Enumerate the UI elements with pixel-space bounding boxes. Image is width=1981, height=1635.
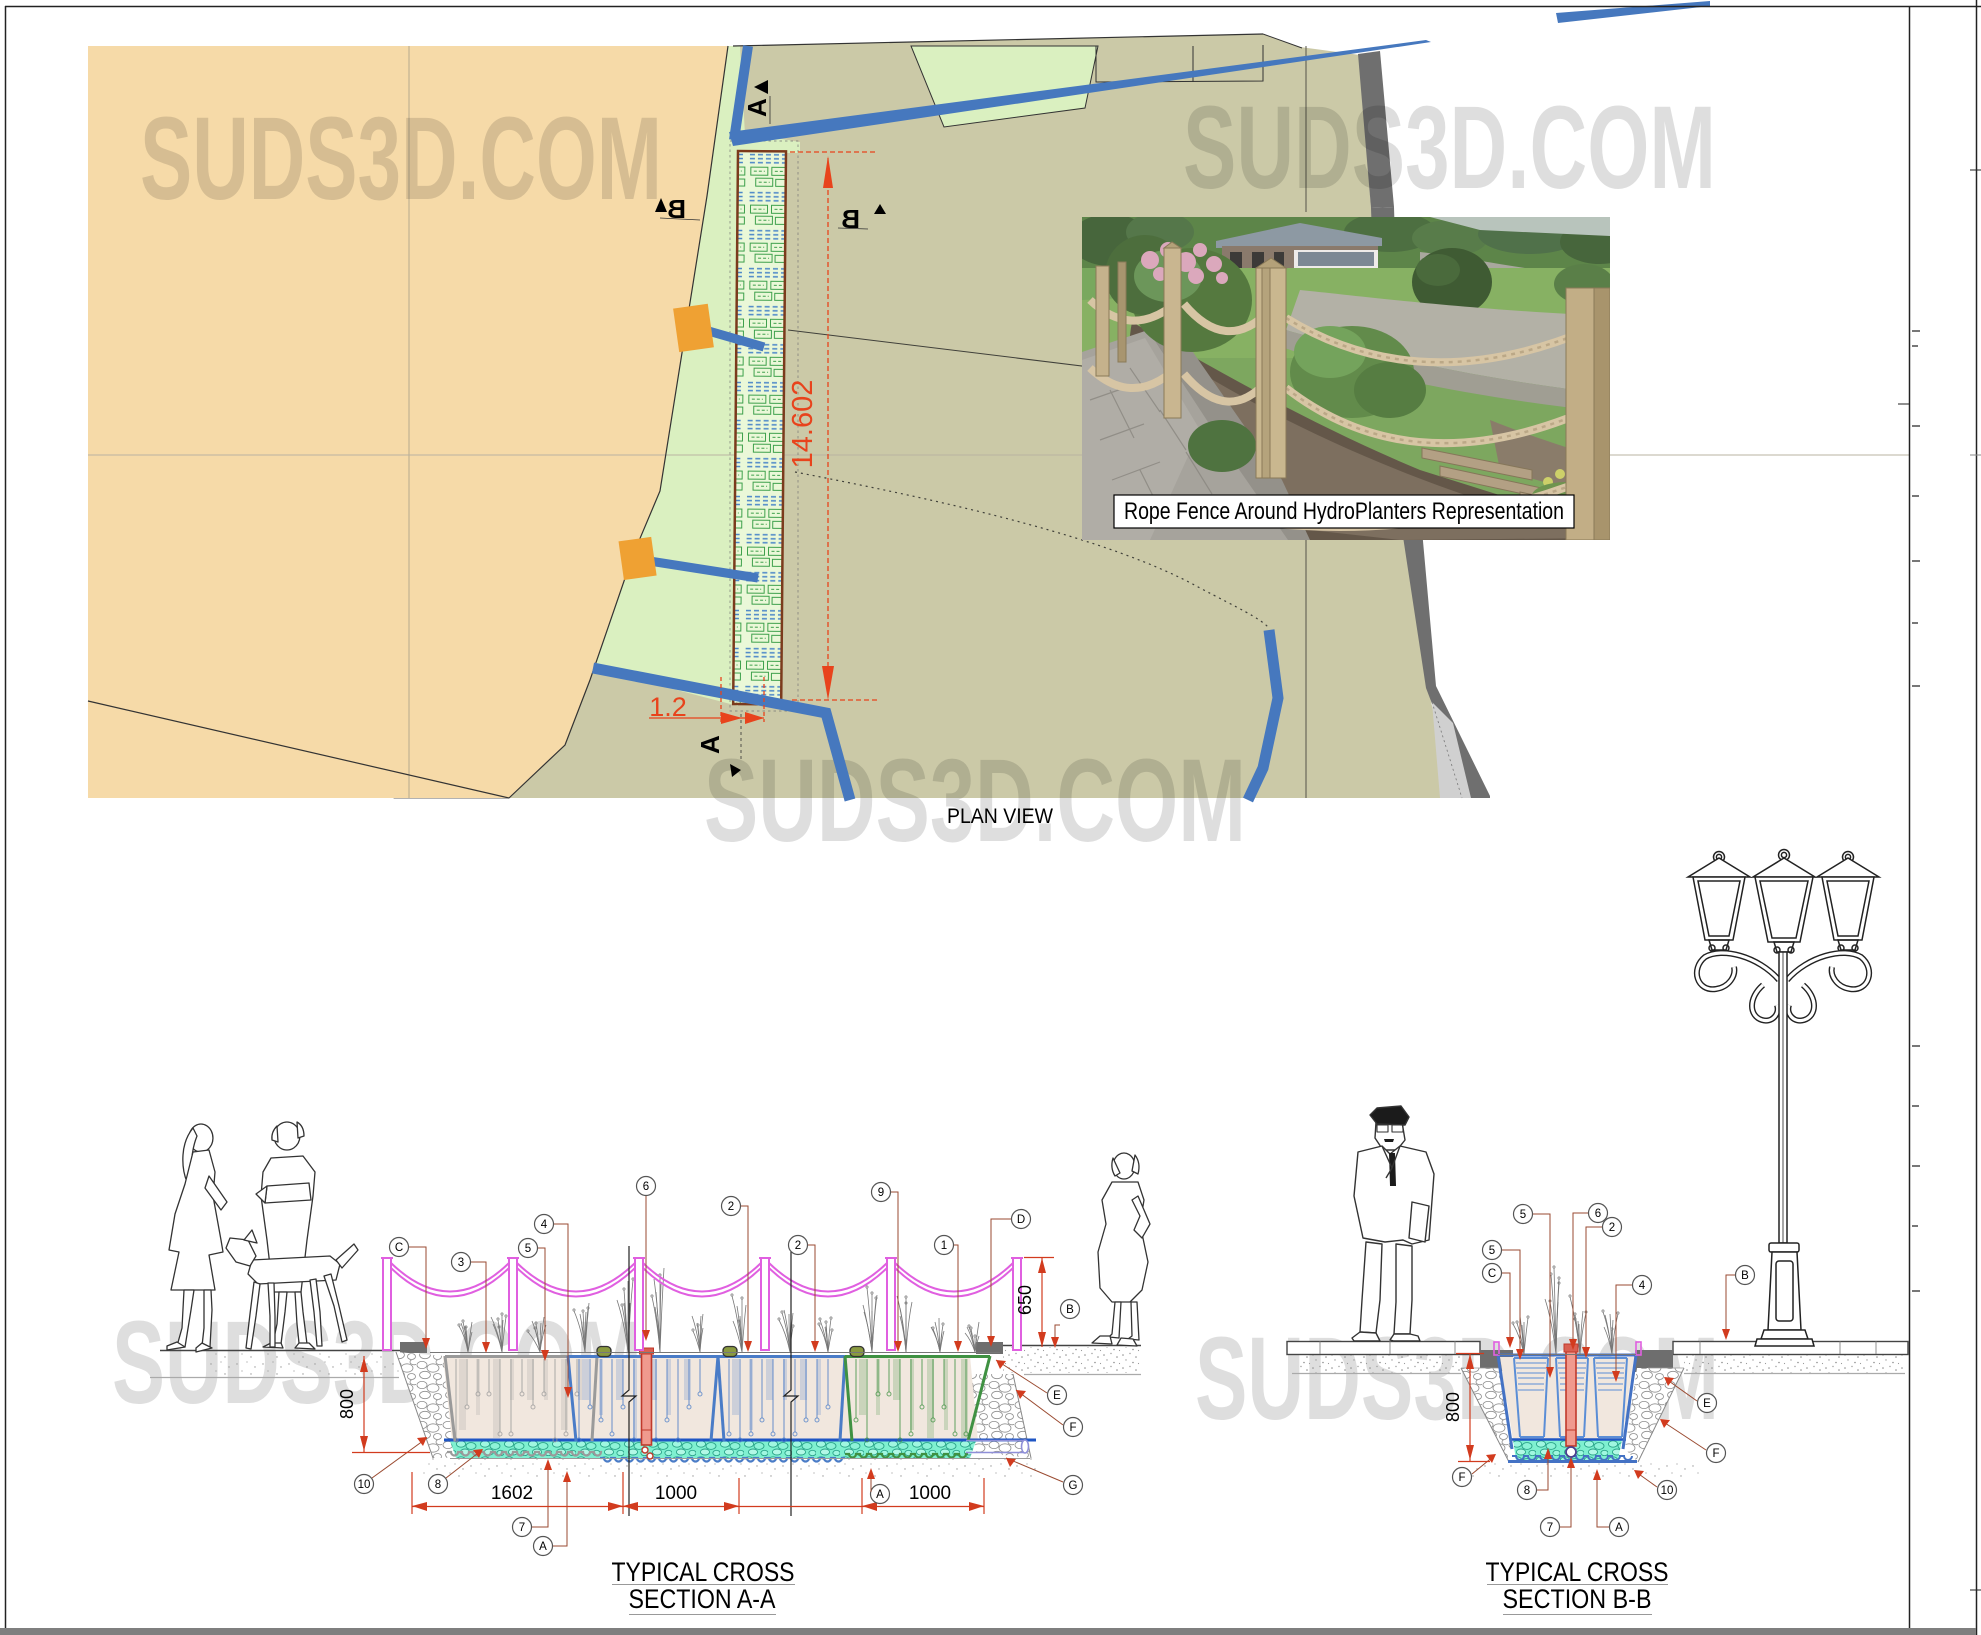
svg-text:C: C xyxy=(395,1242,403,1254)
svg-text:5: 5 xyxy=(1520,1209,1526,1221)
svg-text:4: 4 xyxy=(541,1219,548,1231)
svg-text:5: 5 xyxy=(525,1243,531,1255)
svg-text:Rope Fence Around HydroPlanter: Rope Fence Around HydroPlanters Represen… xyxy=(1124,498,1564,525)
svg-text:F: F xyxy=(1069,1422,1076,1434)
svg-text:1000: 1000 xyxy=(655,1483,697,1504)
svg-text:1: 1 xyxy=(941,1240,947,1252)
svg-text:A: A xyxy=(876,1489,884,1501)
svg-text:TYPICAL CROSS: TYPICAL CROSS xyxy=(1486,1557,1669,1587)
svg-text:6: 6 xyxy=(1595,1208,1601,1220)
svg-text:1602: 1602 xyxy=(491,1483,533,1504)
svg-text:A: A xyxy=(1615,1522,1623,1534)
svg-text:10: 10 xyxy=(358,1479,371,1491)
svg-text:7: 7 xyxy=(1547,1522,1553,1534)
svg-text:1.2: 1.2 xyxy=(649,692,687,722)
svg-text:1000: 1000 xyxy=(909,1483,951,1504)
svg-text:10: 10 xyxy=(1661,1485,1674,1497)
svg-text:B: B xyxy=(1066,1304,1074,1316)
svg-text:8: 8 xyxy=(435,1479,441,1491)
svg-text:F: F xyxy=(1458,1472,1465,1484)
svg-text:SECTION A-A: SECTION A-A xyxy=(629,1584,776,1614)
svg-text:9: 9 xyxy=(878,1187,884,1199)
svg-text:A: A xyxy=(742,98,772,117)
svg-text:14.602: 14.602 xyxy=(787,380,819,469)
svg-text:SECTION B-B: SECTION B-B xyxy=(1503,1584,1652,1614)
svg-text:A: A xyxy=(695,735,725,754)
svg-text:SUDS3D.COM: SUDS3D.COM xyxy=(140,93,662,225)
svg-text:E: E xyxy=(1053,1390,1061,1402)
svg-text:A: A xyxy=(539,1541,547,1553)
svg-text:650: 650 xyxy=(1015,1285,1035,1315)
svg-text:B: B xyxy=(841,204,860,234)
svg-text:2: 2 xyxy=(795,1240,801,1252)
svg-text:C: C xyxy=(1488,1268,1496,1280)
svg-text:SUDS3D.COM: SUDS3D.COM xyxy=(704,735,1246,867)
svg-text:2: 2 xyxy=(728,1201,734,1213)
svg-text:8: 8 xyxy=(1524,1485,1530,1497)
svg-text:2: 2 xyxy=(1609,1222,1615,1234)
svg-text:F: F xyxy=(1712,1448,1719,1460)
svg-text:PLAN VIEW: PLAN VIEW xyxy=(947,805,1053,828)
svg-text:E: E xyxy=(1703,1398,1711,1410)
svg-text:4: 4 xyxy=(1639,1280,1646,1292)
svg-text:5: 5 xyxy=(1489,1245,1495,1257)
svg-text:D: D xyxy=(1017,1214,1025,1226)
svg-text:800: 800 xyxy=(1443,1392,1463,1422)
svg-text:7: 7 xyxy=(519,1522,525,1534)
svg-text:TYPICAL CROSS: TYPICAL CROSS xyxy=(612,1557,795,1587)
svg-text:6: 6 xyxy=(643,1181,649,1193)
svg-text:SUDS3D.COM: SUDS3D.COM xyxy=(1183,82,1716,214)
svg-text:800: 800 xyxy=(337,1389,357,1419)
svg-text:B: B xyxy=(1741,1270,1749,1282)
svg-text:3: 3 xyxy=(458,1257,464,1269)
svg-text:G: G xyxy=(1069,1480,1078,1492)
